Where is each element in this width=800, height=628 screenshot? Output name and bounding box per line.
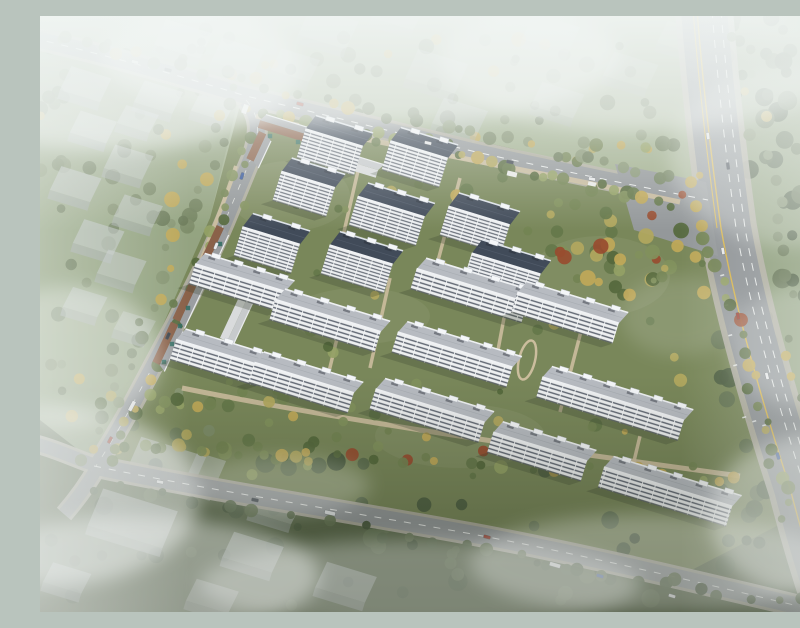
tree bbox=[635, 251, 643, 259]
mist-cloud bbox=[190, 456, 370, 516]
tree bbox=[647, 246, 655, 254]
atmospheric-haze bbox=[680, 16, 800, 612]
tree bbox=[593, 239, 608, 254]
tree bbox=[571, 242, 584, 255]
tree bbox=[661, 265, 668, 272]
atmospheric-haze bbox=[40, 16, 190, 612]
tree bbox=[580, 270, 596, 286]
tree bbox=[595, 278, 603, 286]
tree bbox=[614, 253, 626, 265]
tree bbox=[557, 250, 571, 264]
render-viewport bbox=[40, 16, 800, 612]
aerial-site-render bbox=[40, 16, 800, 612]
